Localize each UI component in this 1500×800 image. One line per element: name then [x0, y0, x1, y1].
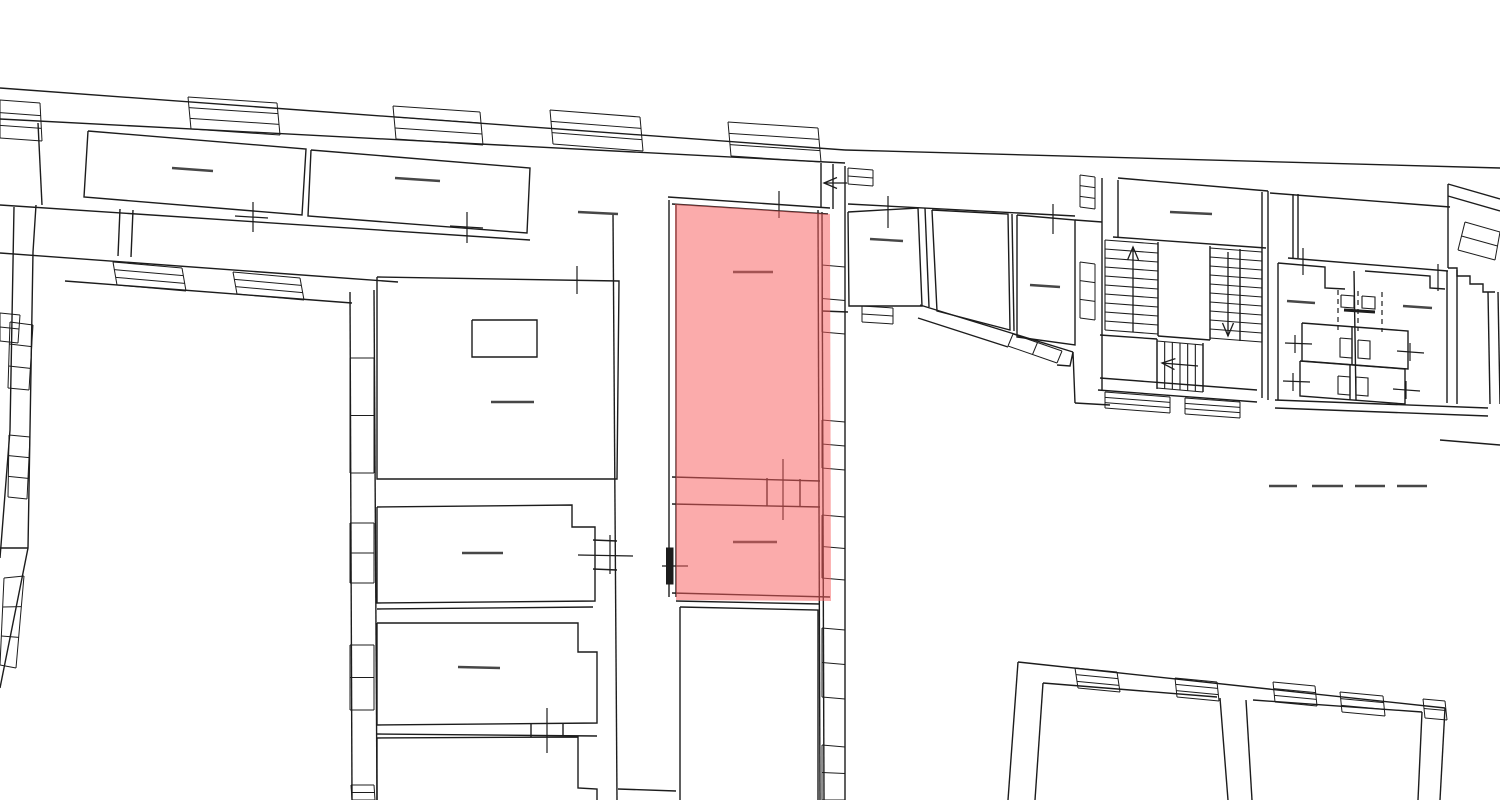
door-ticks-layer	[235, 191, 1438, 753]
highlighted-room-overlay[interactable]	[675, 204, 831, 601]
floor-plan-canvas	[0, 0, 1500, 800]
stairs-layer	[1105, 240, 1262, 392]
door-leaf	[666, 548, 673, 584]
floor-plan-svg	[0, 0, 1500, 800]
